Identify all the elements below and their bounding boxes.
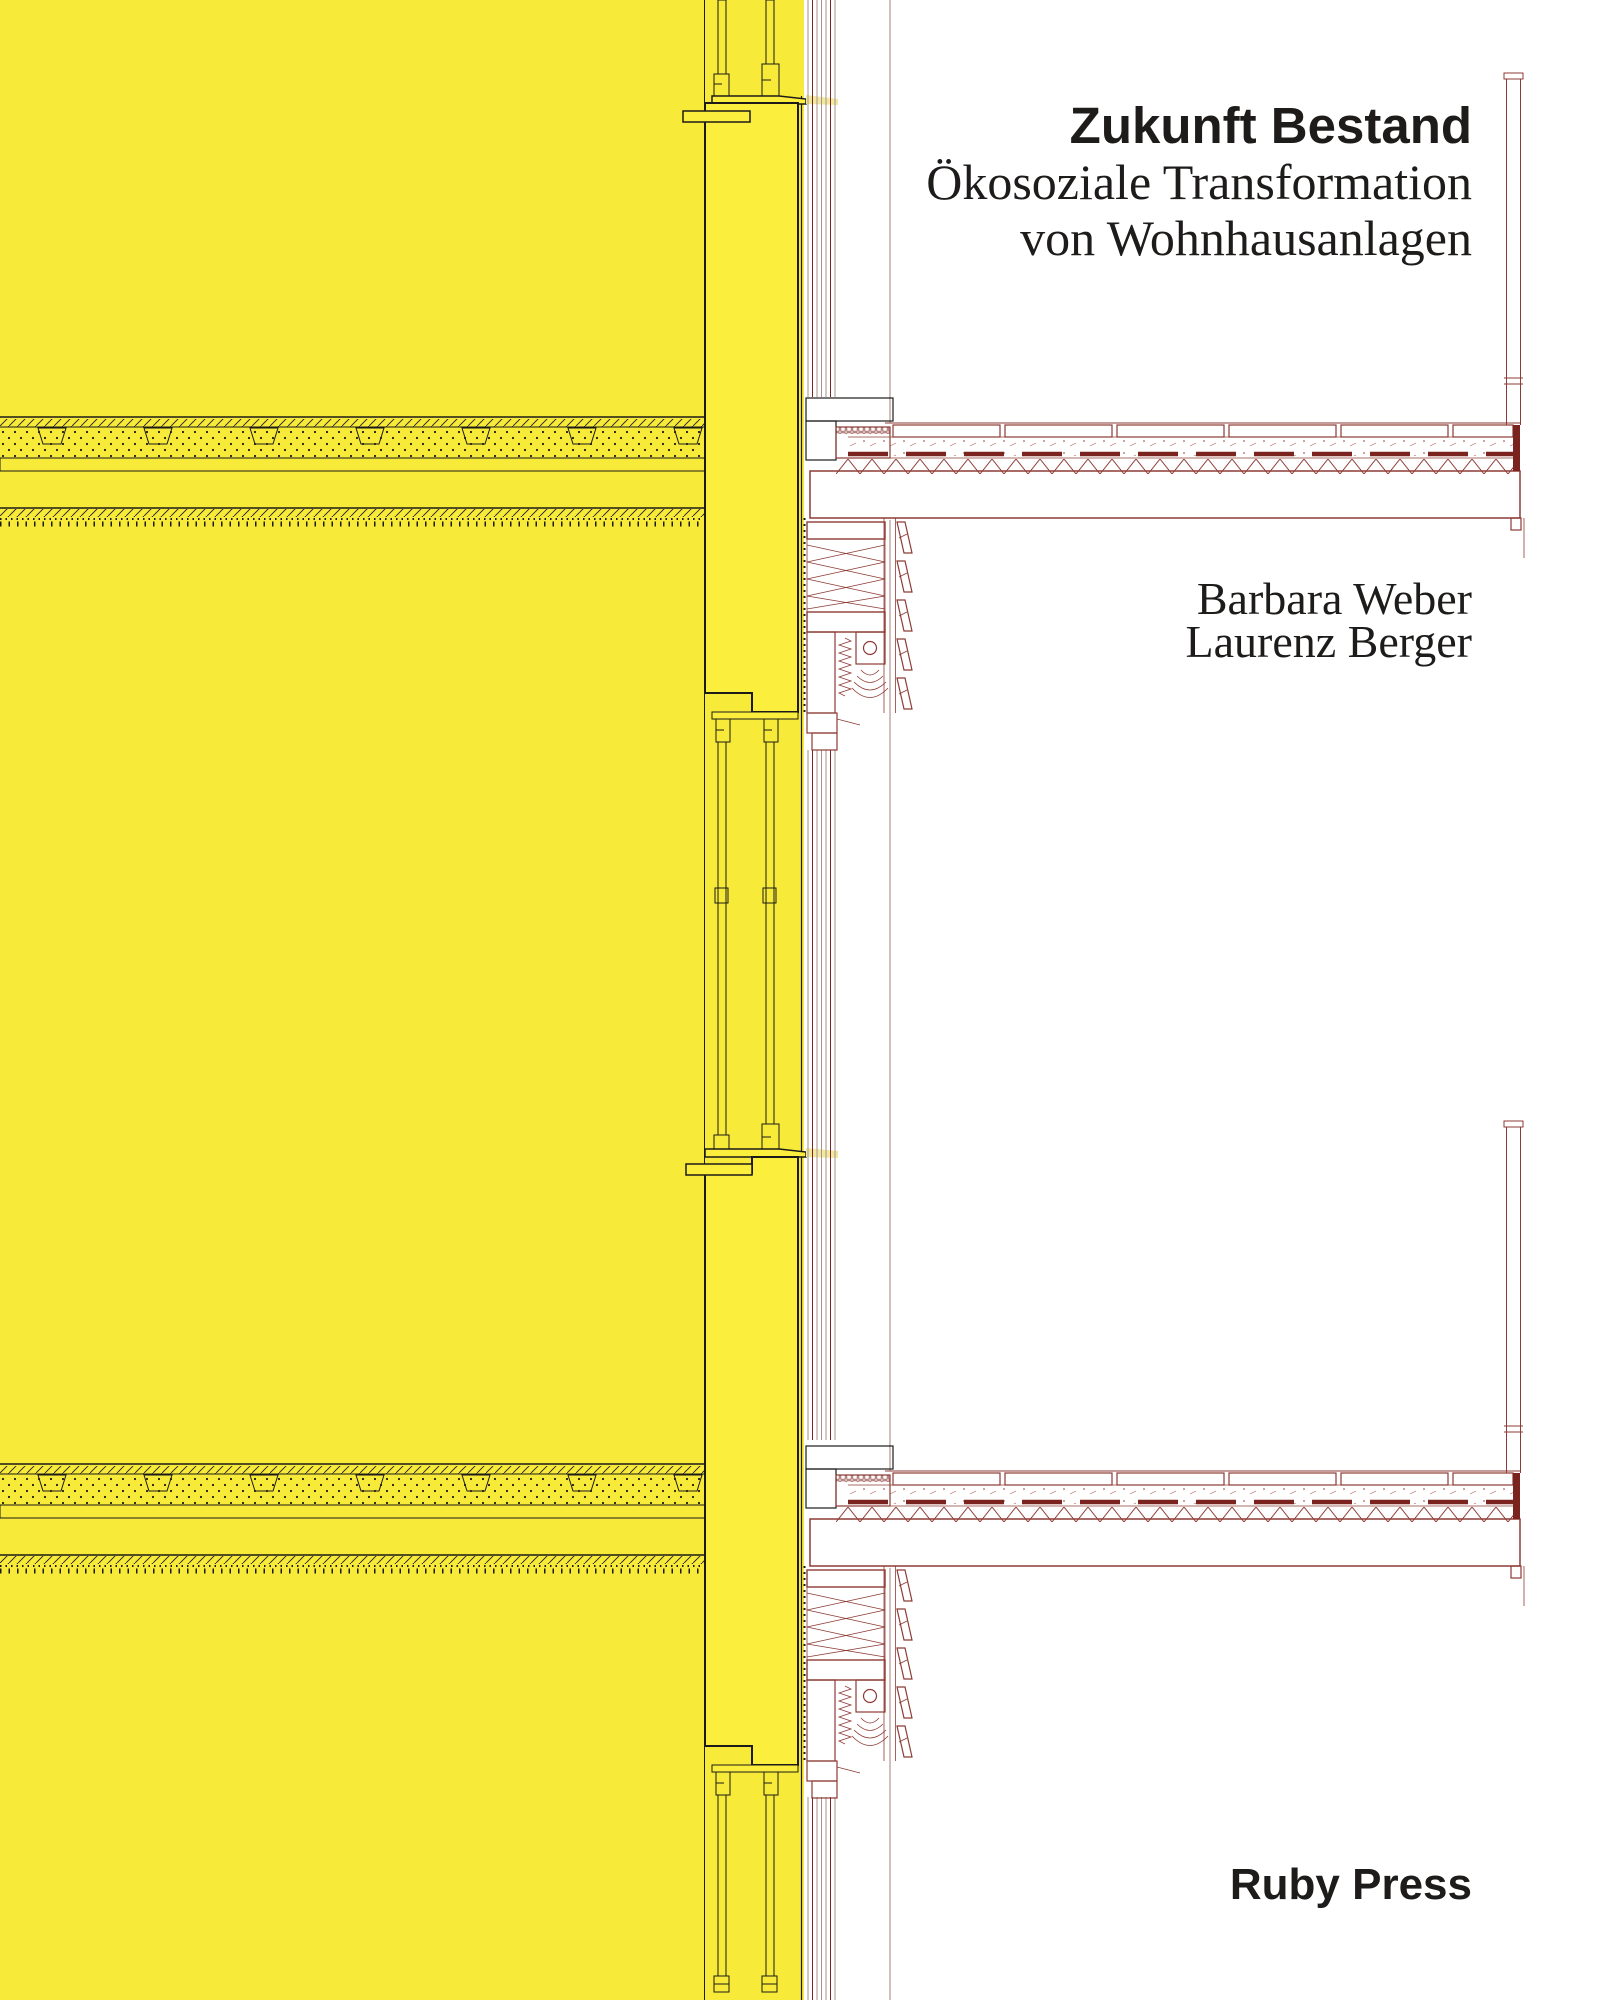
book-subtitle-line2: von Wohnhausanlagen <box>926 210 1472 266</box>
new-window-frame <box>807 713 860 750</box>
old-floor-band <box>0 417 705 524</box>
insulation-detail <box>805 518 913 713</box>
new-construction <box>805 0 1525 2000</box>
book-subtitle-line1: Ökosoziale Transformation <box>926 154 1472 210</box>
architectural-section-drawing <box>0 0 1614 2000</box>
balcony-balustrade <box>1504 1121 1523 1473</box>
book-cover: Zukunft Bestand Ökosoziale Transformatio… <box>0 0 1614 2000</box>
new-floor-slab <box>806 398 1524 558</box>
balcony-balustrade <box>1504 73 1523 425</box>
publisher-block: Ruby Press <box>1230 1860 1472 1910</box>
publisher-name: Ruby Press <box>1230 1860 1472 1910</box>
old-floor-band <box>0 1464 705 1571</box>
new-window-frame <box>807 1761 860 1798</box>
new-floor-slab <box>806 1446 1524 1606</box>
insulation-detail <box>805 1566 913 1761</box>
author-name: Laurenz Berger <box>1186 620 1473 663</box>
new-wall-layer-lines <box>808 0 835 2000</box>
author-name: Barbara Weber <box>1186 577 1473 620</box>
yellow-field <box>0 0 804 2000</box>
title-block: Zukunft Bestand Ökosoziale Transformatio… <box>926 97 1472 266</box>
authors-block: Barbara Weber Laurenz Berger <box>1186 577 1473 663</box>
book-title: Zukunft Bestand <box>926 97 1472 154</box>
